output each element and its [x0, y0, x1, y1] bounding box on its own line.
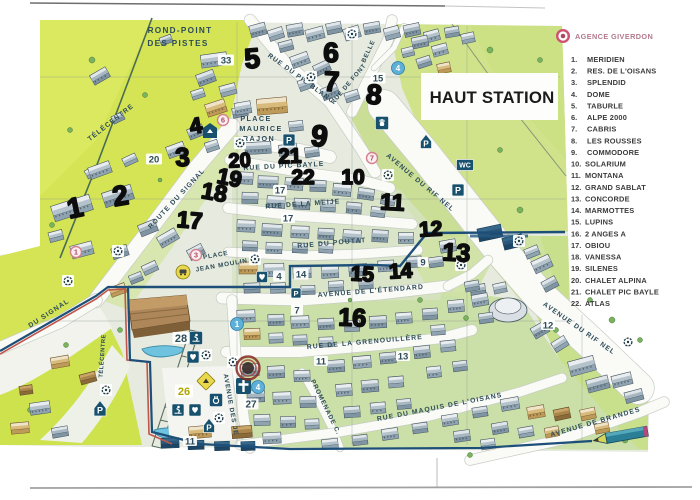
svg-text:14.: 14.	[571, 206, 581, 215]
svg-text:1: 1	[235, 320, 240, 329]
svg-text:13: 13	[398, 351, 409, 362]
svg-text:9: 9	[420, 257, 425, 268]
svg-text:OBIOU: OBIOU	[585, 241, 610, 250]
svg-text:18: 18	[200, 177, 230, 207]
svg-text:COMMODORE: COMMODORE	[587, 148, 639, 157]
svg-text:11: 11	[380, 188, 406, 215]
svg-text:WC: WC	[459, 163, 471, 170]
svg-text:7.: 7.	[571, 125, 577, 134]
svg-text:MAURICE: MAURICE	[239, 124, 282, 133]
svg-text:21.: 21.	[571, 287, 581, 296]
svg-text:2.: 2.	[571, 67, 577, 76]
svg-text:14: 14	[388, 259, 413, 283]
svg-text:MARMOTTES: MARMOTTES	[585, 206, 634, 215]
svg-text:21: 21	[278, 145, 302, 169]
svg-text:MONTANA: MONTANA	[585, 171, 624, 180]
svg-text:6: 6	[323, 37, 339, 68]
svg-text:16.: 16.	[571, 229, 581, 238]
svg-text:4.: 4.	[571, 90, 577, 99]
svg-text:11: 11	[185, 436, 196, 447]
svg-text:PLACE: PLACE	[240, 114, 271, 123]
svg-text:4: 4	[256, 383, 261, 392]
svg-text:LES ROUSSES: LES ROUSSES	[587, 136, 642, 145]
svg-text:7: 7	[323, 66, 340, 98]
svg-text:3: 3	[175, 142, 191, 173]
svg-text:9.: 9.	[571, 148, 577, 157]
svg-text:DOME: DOME	[587, 90, 610, 99]
svg-text:19.: 19.	[571, 264, 581, 273]
svg-text:11.: 11.	[571, 171, 581, 180]
svg-text:SOLARIUM: SOLARIUM	[585, 160, 626, 169]
svg-text:P: P	[293, 289, 298, 298]
svg-text:GRAND SABLAT: GRAND SABLAT	[585, 183, 646, 192]
svg-text:SILENES: SILENES	[585, 264, 618, 273]
svg-text:5: 5	[243, 42, 261, 74]
svg-text:14: 14	[296, 269, 307, 280]
svg-text:1: 1	[74, 248, 78, 257]
svg-text:13.: 13.	[571, 194, 581, 203]
svg-text:22.: 22.	[571, 299, 581, 308]
svg-text:10.: 10.	[571, 160, 581, 169]
svg-text:18.: 18.	[571, 253, 581, 262]
svg-text:AGENCE GIVERDON: AGENCE GIVERDON	[575, 32, 653, 41]
svg-text:P: P	[455, 186, 461, 196]
svg-text:11: 11	[316, 356, 327, 367]
svg-text:4: 4	[396, 64, 401, 73]
svg-text:RAJON: RAJON	[243, 134, 275, 143]
svg-text:33: 33	[221, 55, 232, 66]
svg-text:SPLENDID: SPLENDID	[587, 78, 626, 87]
svg-text:6.: 6.	[571, 113, 577, 122]
svg-text:22: 22	[291, 166, 314, 189]
svg-text:P: P	[97, 406, 103, 416]
svg-text:CHALET PIC BAYLE: CHALET PIC BAYLE	[585, 287, 659, 296]
svg-text:1.: 1.	[571, 55, 577, 64]
svg-text:12.: 12.	[571, 183, 581, 192]
svg-text:ROND-POINT: ROND-POINT	[148, 26, 213, 35]
svg-text:LUPINS: LUPINS	[585, 218, 613, 227]
svg-text:2 ANGES A: 2 ANGES A	[585, 229, 627, 238]
svg-text:VANESSA: VANESSA	[585, 253, 622, 262]
svg-text:ATLAS: ATLAS	[585, 299, 610, 308]
svg-text:17: 17	[283, 213, 294, 224]
svg-text:MERIDIEN: MERIDIEN	[587, 55, 625, 64]
svg-text:DES PISTES: DES PISTES	[147, 39, 208, 48]
svg-text:17: 17	[275, 185, 286, 196]
svg-text:28: 28	[175, 333, 187, 345]
svg-text:7: 7	[370, 154, 374, 163]
svg-text:3: 3	[194, 251, 198, 260]
svg-text:TABURLE: TABURLE	[587, 102, 623, 111]
svg-text:17: 17	[176, 206, 204, 234]
svg-text:RES. DE L'OISANS: RES. DE L'OISANS	[587, 67, 656, 76]
svg-text:15.: 15.	[571, 218, 581, 227]
svg-text:CHALET ALPINA: CHALET ALPINA	[585, 276, 647, 285]
svg-text:P: P	[206, 423, 212, 432]
svg-text:20.: 20.	[571, 276, 581, 285]
svg-text:P: P	[423, 139, 429, 148]
svg-text:27: 27	[245, 400, 257, 411]
svg-text:8.: 8.	[571, 136, 577, 145]
svg-text:26: 26	[178, 386, 190, 398]
svg-text:ALPE 2000: ALPE 2000	[587, 113, 627, 122]
svg-text:8: 8	[365, 78, 384, 110]
svg-text:10: 10	[341, 166, 364, 189]
svg-text:17.: 17.	[571, 241, 581, 250]
svg-text:13: 13	[442, 238, 471, 267]
svg-text:16: 16	[338, 304, 367, 333]
svg-text:4: 4	[276, 271, 282, 282]
svg-text:7: 7	[294, 305, 299, 316]
svg-text:5.: 5.	[571, 102, 577, 111]
svg-text:HAUT STATION: HAUT STATION	[430, 88, 555, 107]
svg-text:3.: 3.	[571, 78, 577, 87]
svg-text:12: 12	[543, 320, 554, 331]
svg-text:20: 20	[149, 154, 160, 165]
svg-text:CABRIS: CABRIS	[587, 125, 617, 134]
svg-text:6: 6	[221, 116, 225, 125]
svg-text:CONCORDE: CONCORDE	[585, 194, 630, 203]
svg-text:15: 15	[350, 262, 375, 286]
svg-text:12: 12	[418, 217, 443, 241]
